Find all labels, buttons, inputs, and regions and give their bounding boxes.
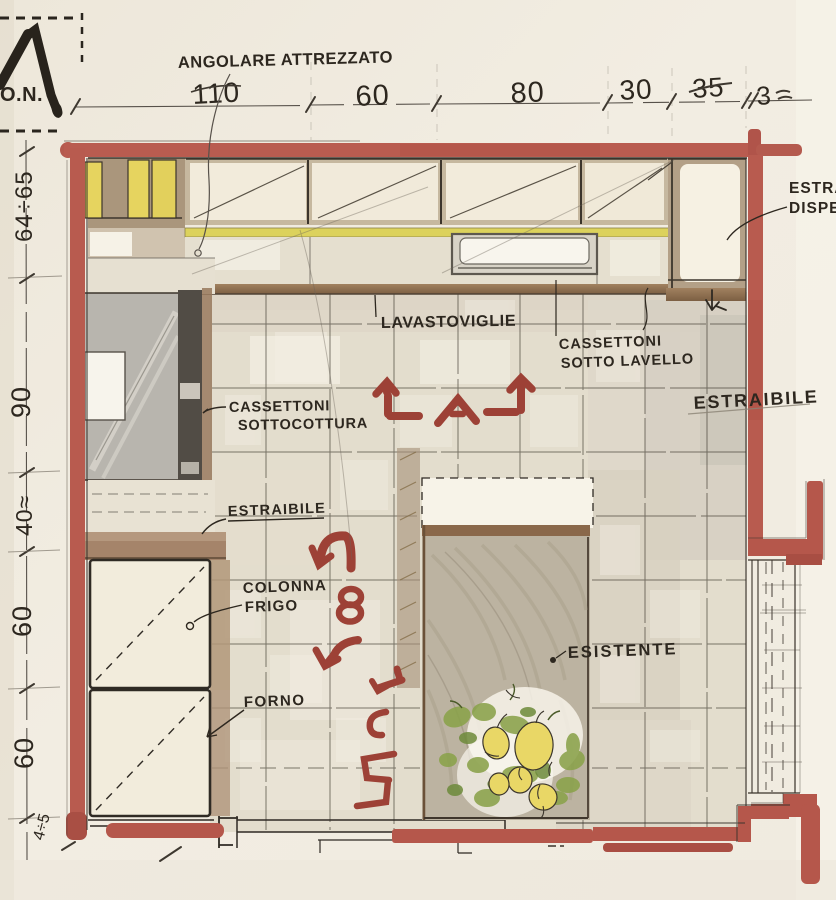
svg-text:CASSETTONI: CASSETTONI: [229, 398, 330, 416]
svg-text:3: 3: [755, 80, 773, 111]
svg-text:ESISTENTE: ESISTENTE: [568, 640, 678, 662]
svg-text:60: 60: [355, 79, 391, 113]
svg-text:ESTRA: ESTRA: [789, 180, 836, 197]
svg-text:64÷65: 64÷65: [11, 170, 38, 242]
svg-text:O.N.: O.N.: [0, 84, 43, 106]
svg-text:SOTTOCOTTURA: SOTTOCOTTURA: [238, 416, 368, 434]
svg-text:40≈: 40≈: [11, 495, 37, 536]
svg-text:35: 35: [691, 72, 725, 104]
svg-text:DISPE: DISPE: [789, 200, 836, 217]
svg-text:60: 60: [9, 737, 39, 769]
svg-text:110: 110: [192, 77, 241, 110]
svg-text:30: 30: [619, 73, 654, 106]
svg-text:FORNO: FORNO: [244, 692, 306, 711]
svg-text:LAVASTOVIGLIE: LAVASTOVIGLIE: [381, 313, 517, 332]
svg-text:COLONNA: COLONNA: [243, 577, 328, 597]
svg-text:80: 80: [510, 76, 546, 110]
svg-text:FRIGO: FRIGO: [245, 597, 299, 616]
svg-text:60: 60: [7, 605, 37, 637]
svg-text:ESTRAIBILE: ESTRAIBILE: [228, 501, 327, 520]
svg-text:90: 90: [6, 386, 36, 418]
